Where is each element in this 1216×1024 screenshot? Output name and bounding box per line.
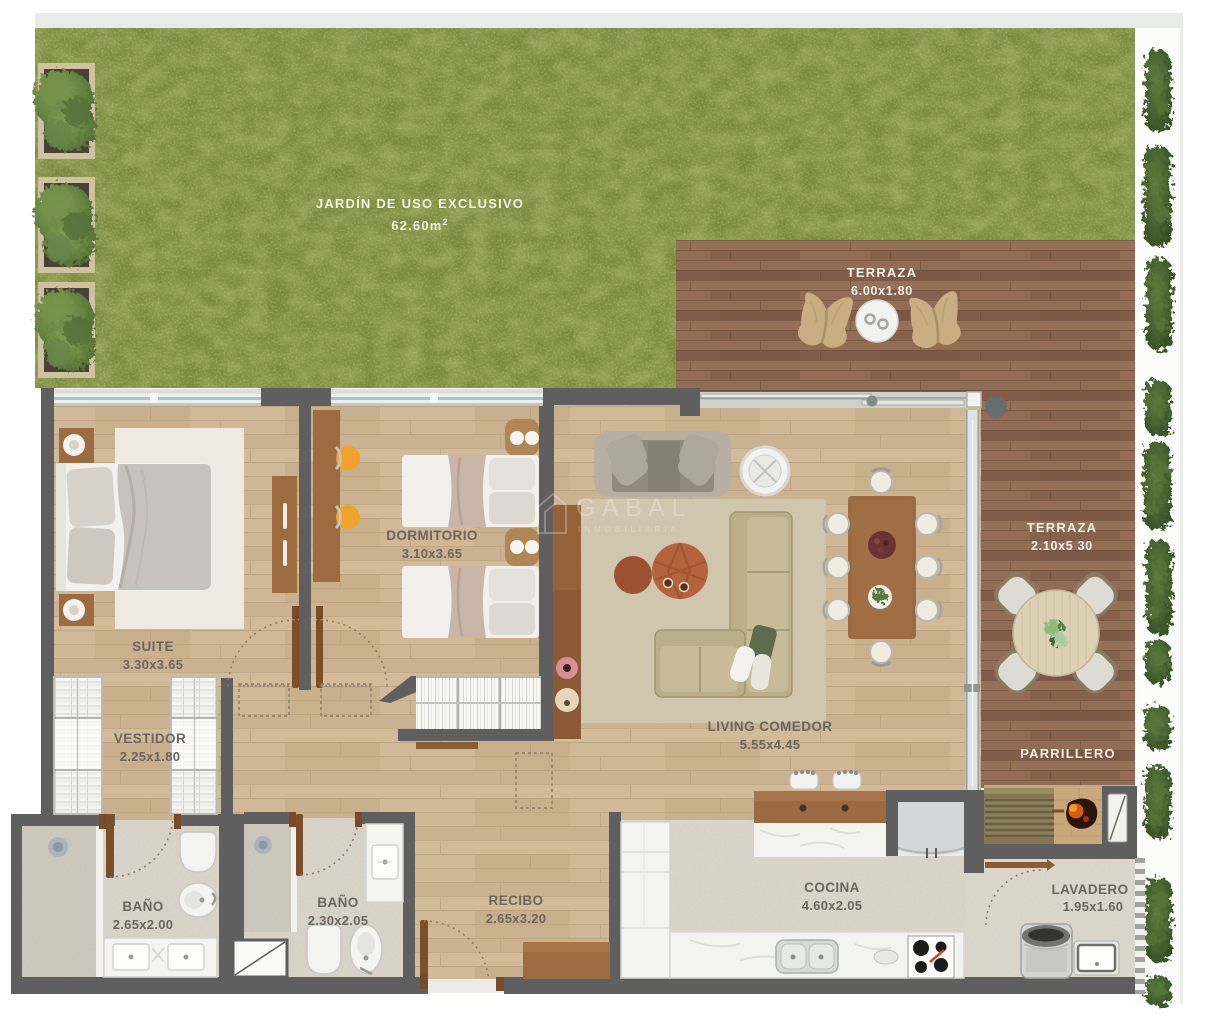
svg-text:TERRAZA: TERRAZA — [847, 265, 918, 280]
svg-text:DORMITORIO: DORMITORIO — [386, 528, 478, 543]
svg-text:INMOBILIARIA: INMOBILIARIA — [578, 525, 680, 534]
svg-text:BAÑO: BAÑO — [122, 899, 163, 914]
svg-text:VESTIDOR: VESTIDOR — [114, 731, 186, 746]
svg-text:LAVADERO: LAVADERO — [1052, 882, 1129, 897]
svg-text:2.10x5 30: 2.10x5 30 — [1031, 539, 1093, 553]
svg-text:62.60m2: 62.60m2 — [391, 217, 449, 233]
svg-text:2.65x2.00: 2.65x2.00 — [113, 917, 174, 932]
svg-text:2.65x3.20: 2.65x3.20 — [486, 911, 547, 926]
svg-text:SUITE: SUITE — [132, 639, 174, 654]
svg-text:BAÑO: BAÑO — [317, 895, 358, 910]
svg-text:3.10x3.65: 3.10x3.65 — [402, 546, 463, 561]
svg-text:2.30x2.05: 2.30x2.05 — [308, 913, 369, 928]
svg-text:3.30x3.65: 3.30x3.65 — [123, 657, 184, 672]
svg-text:1.95x1.60: 1.95x1.60 — [1063, 899, 1124, 914]
svg-text:RECIBO: RECIBO — [489, 893, 544, 908]
svg-text:5.55x4.45: 5.55x4.45 — [740, 737, 801, 752]
svg-text:6.00x1.80: 6.00x1.80 — [851, 284, 913, 298]
svg-text:2.25x1.80: 2.25x1.80 — [120, 749, 181, 764]
svg-text:GABAL: GABAL — [576, 494, 692, 522]
svg-text:TERRAZA: TERRAZA — [1027, 520, 1098, 535]
svg-text:4.60x2.05: 4.60x2.05 — [802, 898, 863, 913]
svg-text:JARDÍN DE USO EXCLUSIVO: JARDÍN DE USO EXCLUSIVO — [316, 196, 524, 211]
svg-text:LIVING COMEDOR: LIVING COMEDOR — [708, 719, 833, 734]
svg-text:COCINA: COCINA — [804, 880, 860, 895]
svg-text:PARRILLERO: PARRILLERO — [1020, 746, 1116, 761]
